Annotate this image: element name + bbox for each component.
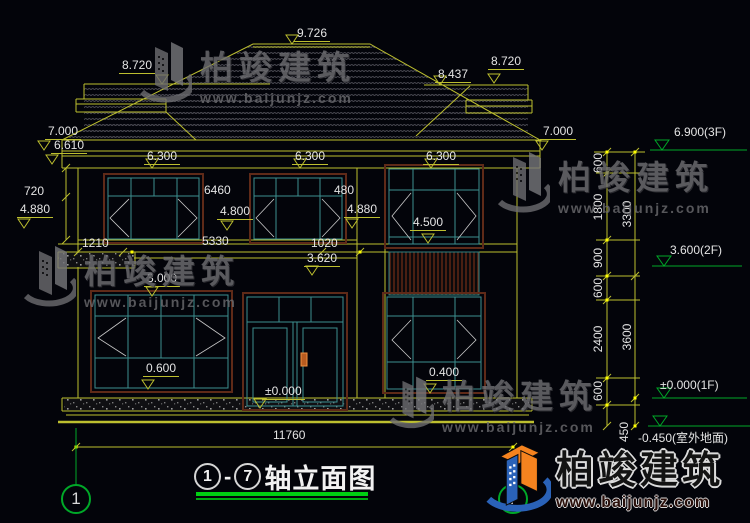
dim-bay-sill: 4.500 — [410, 216, 446, 231]
dim-slab-top: 3.000 — [144, 272, 180, 287]
dim-5330: 5330 — [202, 235, 229, 248]
chain-900: 900 — [592, 248, 604, 268]
title-axis-from: 1 — [194, 463, 221, 490]
chain-600b: 600 — [592, 278, 604, 298]
title-underline-thick — [196, 492, 368, 496]
title-underline-thin — [196, 498, 368, 500]
chain-600a: 600 — [592, 153, 604, 173]
chain-1800: 1800 — [592, 194, 604, 221]
company-logo-brand: 柏竣建筑 — [556, 439, 724, 494]
dim-6460: 6460 — [204, 184, 231, 197]
window-2f-mid — [250, 174, 346, 243]
company-logo: 柏竣建筑 www.baijunjz.com — [481, 438, 724, 512]
dim-ridge: 9.726 — [294, 27, 330, 42]
dim-sill-right-2f: 4.880 — [344, 203, 380, 218]
dim-eave-right: 7.000 — [540, 125, 576, 140]
dim-roof-right-outer: 8.720 — [488, 55, 524, 70]
dim-door-level: ±0.000 — [262, 385, 305, 400]
dim-sill-left-1f: 0.600 — [143, 362, 179, 377]
chain-600c: 600 — [592, 381, 604, 401]
dim-sill-right-1f: 0.400 — [426, 366, 462, 381]
dim-band-right: 6.300 — [423, 150, 459, 165]
title-dash: - — [224, 464, 231, 490]
louver-panel — [389, 252, 479, 295]
window-2f-left — [104, 174, 203, 243]
dim-roof-right-inner: 8.437 — [435, 68, 471, 83]
drawing-title: 1 - 7 轴立面图 — [194, 457, 376, 496]
axis-bubble-1: 1 — [61, 484, 91, 514]
dim-1210: 1210 — [82, 237, 109, 250]
dim-480: 480 — [334, 184, 354, 197]
door-handle — [301, 353, 307, 366]
chain-3300: 3300 — [621, 201, 633, 228]
dim-band-left: 6.300 — [144, 150, 180, 165]
elevation-drawing: 9.726 8.720 8.437 8.720 7.000 6.610 7.00… — [0, 0, 750, 523]
dim-1020: 1020 — [311, 237, 338, 250]
dim-head-2f: 4.800 — [217, 205, 253, 220]
level-2f: 3.600(2F) — [670, 244, 722, 257]
chain-2400: 2400 — [592, 326, 604, 353]
dim-band-mid: 6.300 — [292, 150, 328, 165]
title-axis-to: 7 — [234, 463, 261, 490]
dim-total-width: 11760 — [273, 429, 305, 442]
level-1f: ±0.000(1F) — [660, 379, 719, 392]
window-2f-right — [385, 165, 483, 248]
dim-eave-left-lower: 6.610 — [51, 139, 87, 154]
dim-rail-top: 3.620 — [304, 252, 340, 267]
company-logo-url: www.baijunjz.com — [556, 494, 724, 512]
dim-roof-left: 8.720 — [119, 59, 155, 74]
title-text: 轴立面图 — [264, 457, 376, 496]
dim-720: 720 — [24, 185, 44, 198]
level-3f: 6.900(3F) — [674, 126, 726, 139]
dim-sill-left-2f: 4.880 — [17, 203, 53, 218]
chain-3600: 3600 — [621, 324, 633, 351]
company-logo-icon — [481, 438, 551, 512]
